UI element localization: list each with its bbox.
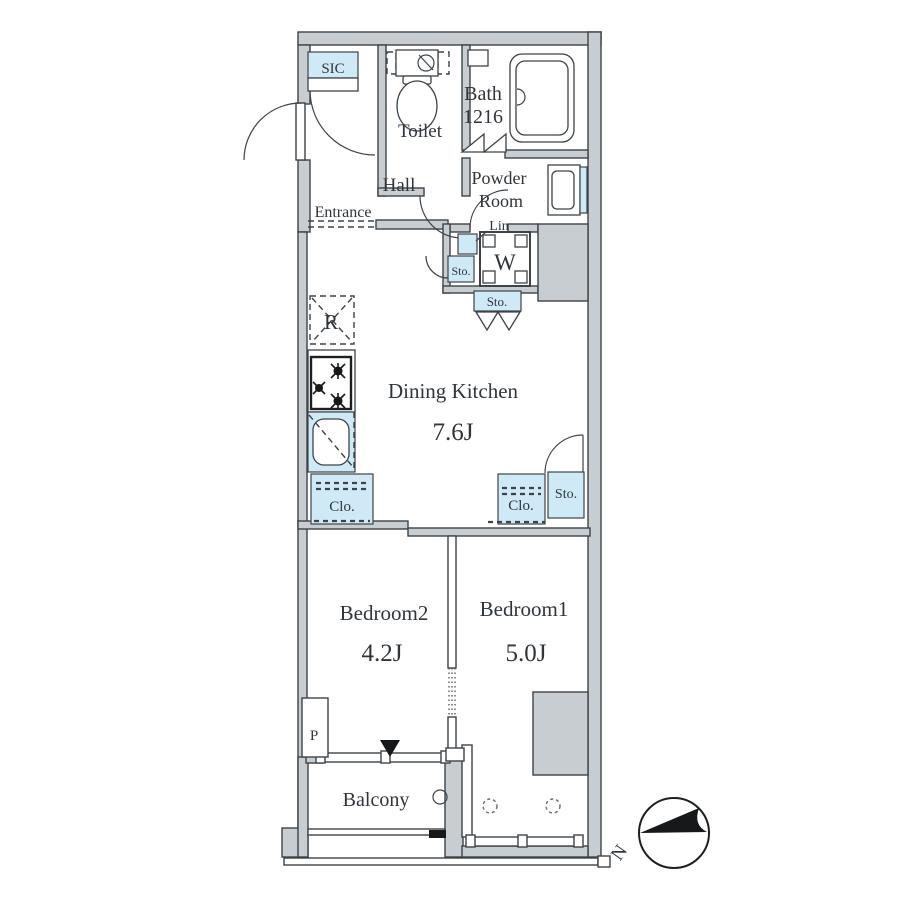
label-pipe-space: P <box>310 728 318 744</box>
vanity-bowl <box>552 171 574 209</box>
wall-notch-powder <box>538 224 588 301</box>
bath-counter <box>468 50 488 66</box>
wall-powder-bottom-right <box>508 224 538 232</box>
label-dining-kitchen-size: 7.6J <box>433 419 474 446</box>
label-closet: Clo. <box>329 499 354 515</box>
toilet-fixture-icon <box>387 50 449 131</box>
label-washer: W <box>494 250 516 275</box>
label-bath-size: 1216 <box>463 106 503 128</box>
window-connector <box>446 748 464 761</box>
label-bedroom2: Bedroom2 <box>340 601 429 625</box>
label-storage: Sto. <box>487 294 508 309</box>
wall-right <box>588 32 601 857</box>
window-cap <box>466 835 475 847</box>
entrance-door-arc <box>244 103 301 160</box>
doors <box>244 90 583 473</box>
wall-dk-bedroom-right <box>408 528 590 536</box>
bathtub-inner <box>516 61 568 135</box>
label-bath: Bath <box>464 83 502 105</box>
wall-powder-left <box>462 158 470 196</box>
toilet-tank <box>396 50 438 76</box>
compass-north-label: N <box>607 841 632 865</box>
storage-double-door-icon <box>498 312 520 330</box>
label-hall: Hall <box>383 175 416 196</box>
window-cap <box>574 835 583 847</box>
wall-bedroom-partition-upper <box>448 536 456 668</box>
label-balcony: Balcony <box>343 789 410 811</box>
vanity-mirror <box>580 167 587 213</box>
label-entrance: Entrance <box>315 204 372 221</box>
label-storage: Sto. <box>451 264 470 278</box>
compass: N <box>607 798 709 868</box>
wall-powder-bottom-left <box>450 224 470 232</box>
wall-bath-bottom <box>505 150 588 158</box>
balcony-outer-end <box>598 856 610 867</box>
toilet-window <box>438 52 449 74</box>
label-storage: Sto. <box>555 487 577 502</box>
balcony-drain-block <box>429 830 446 838</box>
label-refrigerator: R <box>324 310 338 334</box>
label-closet: Clo. <box>508 498 533 514</box>
wall-toilet-left <box>378 45 386 196</box>
entrance-inner-door-arc <box>310 90 375 155</box>
wall-balcony-left <box>298 757 308 857</box>
storage-double-door-icon <box>476 312 498 330</box>
wall-balcony-divider <box>445 753 463 857</box>
washer-pan-corner <box>483 235 495 247</box>
vanity-icon <box>548 165 587 215</box>
floor-plan-page: SIC Entrance Toilet Bath 1216 Hall Powde… <box>0 0 900 900</box>
label-linen: Lin <box>489 219 508 234</box>
bedroom1-door-arc <box>545 435 583 473</box>
label-toilet: Toilet <box>398 121 443 142</box>
balcony-outer-line <box>284 858 598 865</box>
label-bedroom2-size: 4.2J <box>362 640 403 667</box>
label-powder-room: Room <box>479 191 523 211</box>
ceiling-light-icon <box>483 799 497 813</box>
label-dining-kitchen: Dining Kitchen <box>388 379 519 403</box>
ceiling-light-icon <box>546 799 560 813</box>
washer-pan-corner <box>515 235 527 247</box>
label-powder-room: Powder <box>472 168 527 188</box>
sic-shelf <box>308 78 358 91</box>
floor-plan: SIC Entrance Toilet Bath 1216 Hall Powde… <box>0 0 900 900</box>
label-sic: SIC <box>321 61 344 77</box>
bedroom-partition-accordion <box>449 668 455 717</box>
linen-closet <box>458 234 477 254</box>
bath-folding-door-icon <box>484 134 506 152</box>
label-bedroom1: Bedroom1 <box>480 597 569 621</box>
entrance-door-panel <box>296 103 305 160</box>
balcony-edge <box>308 829 445 835</box>
window-cap <box>518 835 527 847</box>
washer-pan-corner <box>515 271 527 283</box>
wall-hall-dk <box>376 220 448 229</box>
wall-top <box>298 32 601 45</box>
toilet-window <box>387 52 396 74</box>
label-bedroom1-size: 5.0J <box>506 640 547 667</box>
wall-notch-bedroom1 <box>533 692 588 775</box>
